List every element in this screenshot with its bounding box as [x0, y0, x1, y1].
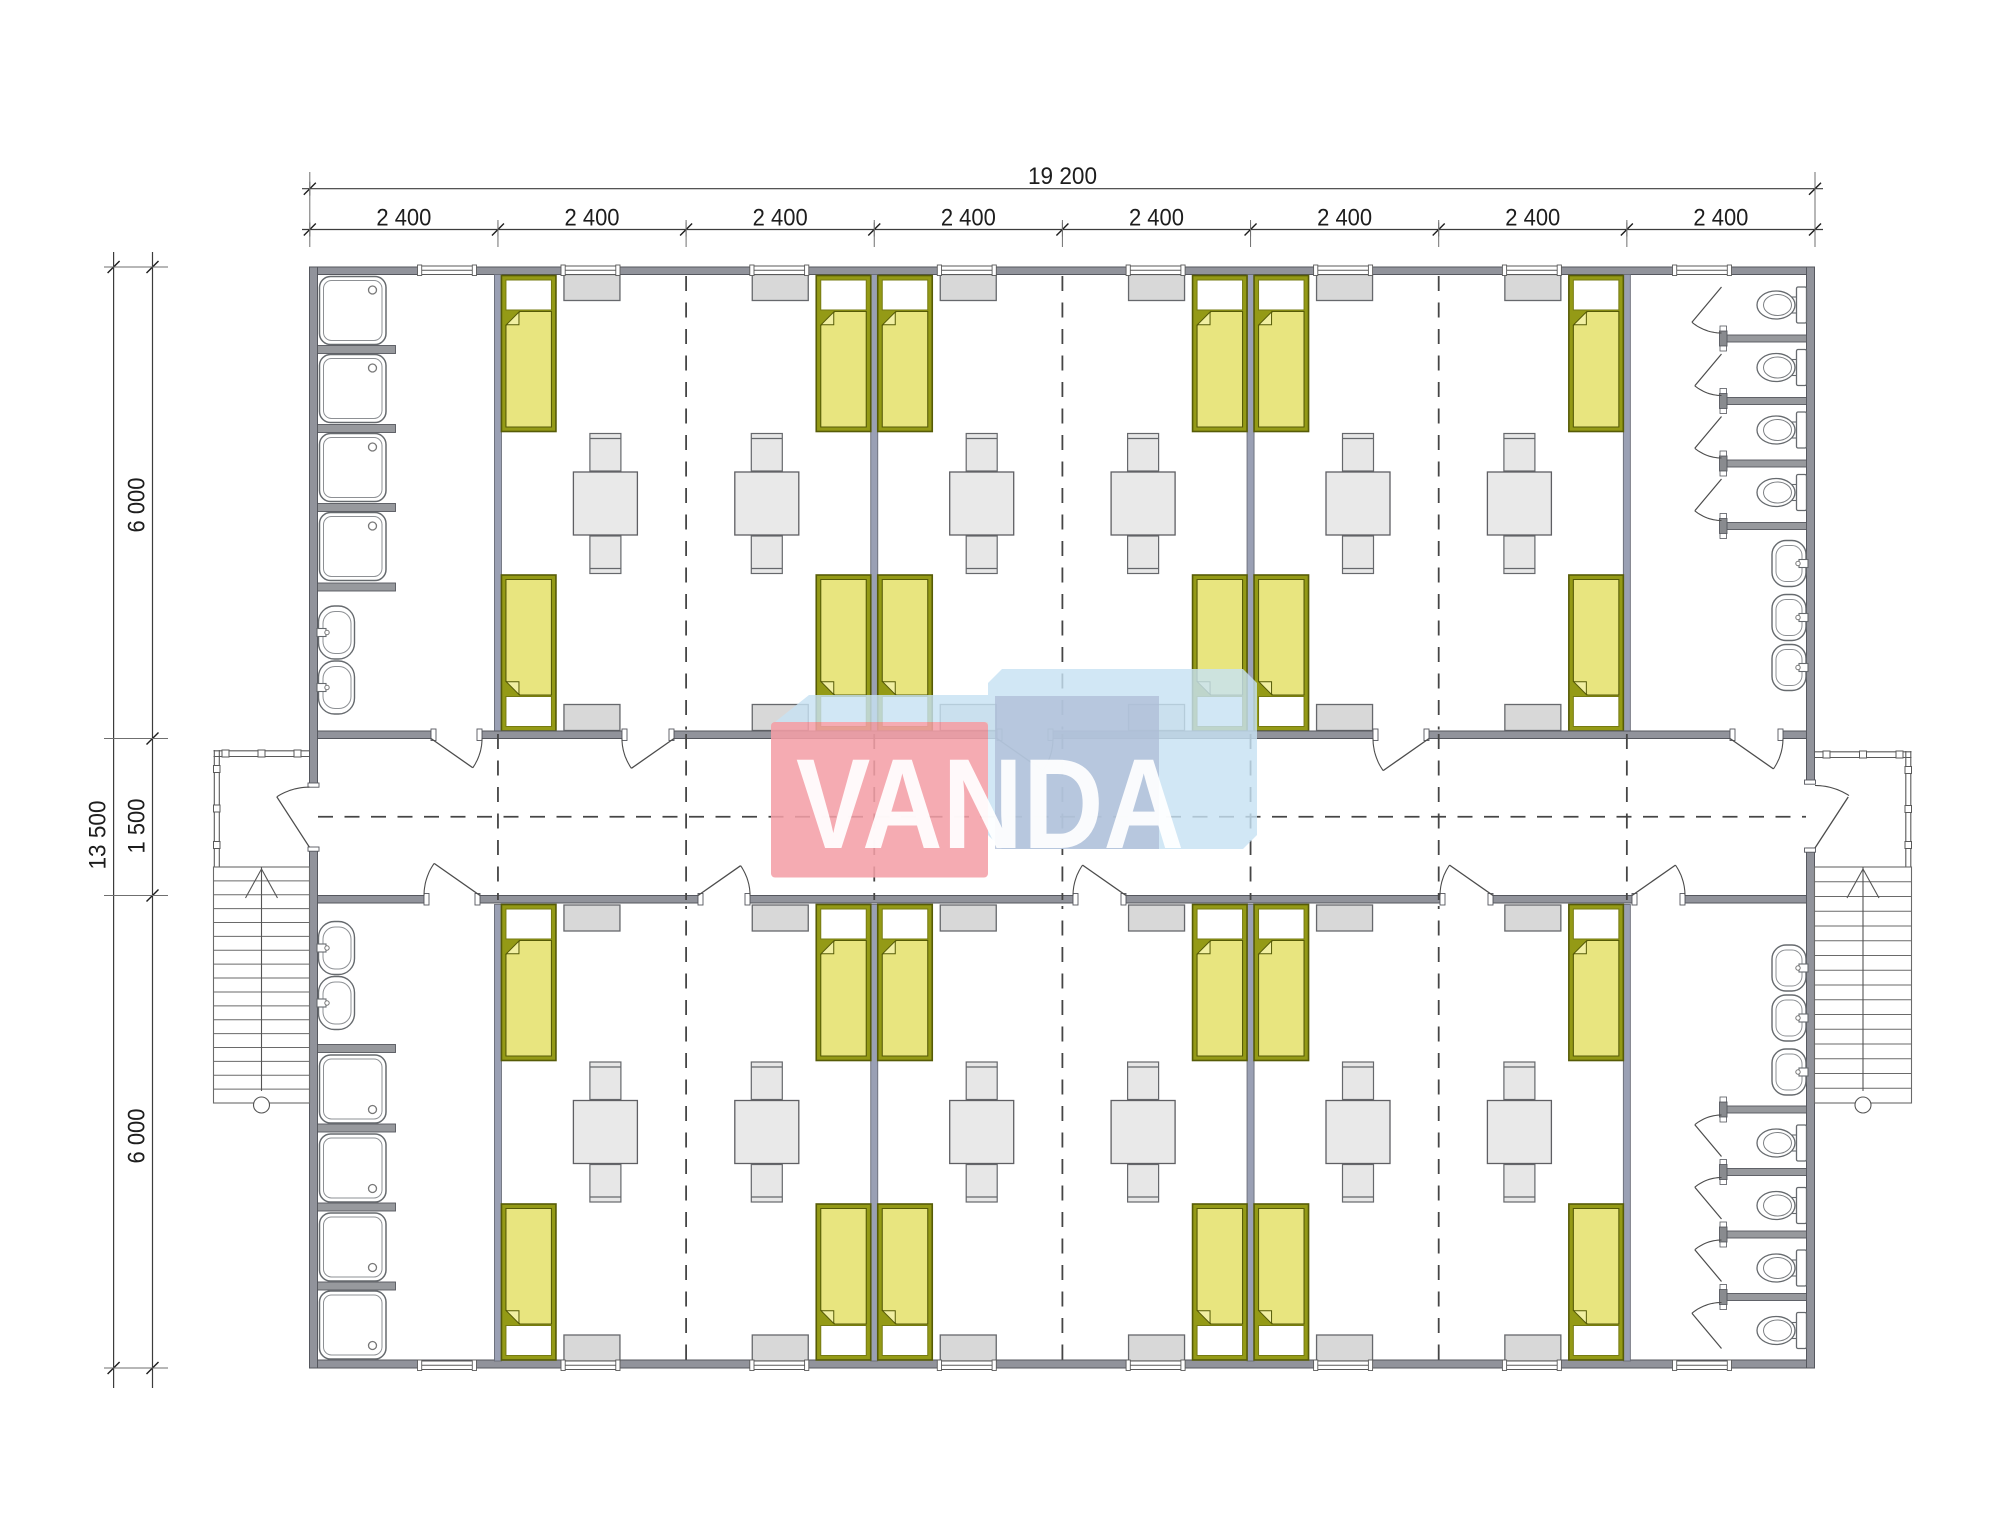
svg-text:6 000: 6 000	[124, 478, 151, 533]
svg-text:VANDA: VANDA	[796, 733, 1184, 876]
svg-text:2 400: 2 400	[941, 205, 996, 232]
svg-text:2 400: 2 400	[1317, 205, 1372, 232]
svg-text:2 400: 2 400	[565, 205, 620, 232]
svg-text:2 400: 2 400	[1505, 205, 1560, 232]
svg-text:19 200: 19 200	[1028, 163, 1097, 190]
svg-text:13 500: 13 500	[85, 801, 112, 870]
svg-text:2 400: 2 400	[376, 205, 431, 232]
svg-text:1 500: 1 500	[124, 799, 151, 854]
svg-text:2 400: 2 400	[753, 205, 808, 232]
svg-text:2 400: 2 400	[1129, 205, 1184, 232]
svg-text:6 000: 6 000	[124, 1109, 151, 1164]
svg-text:2 400: 2 400	[1693, 205, 1748, 232]
